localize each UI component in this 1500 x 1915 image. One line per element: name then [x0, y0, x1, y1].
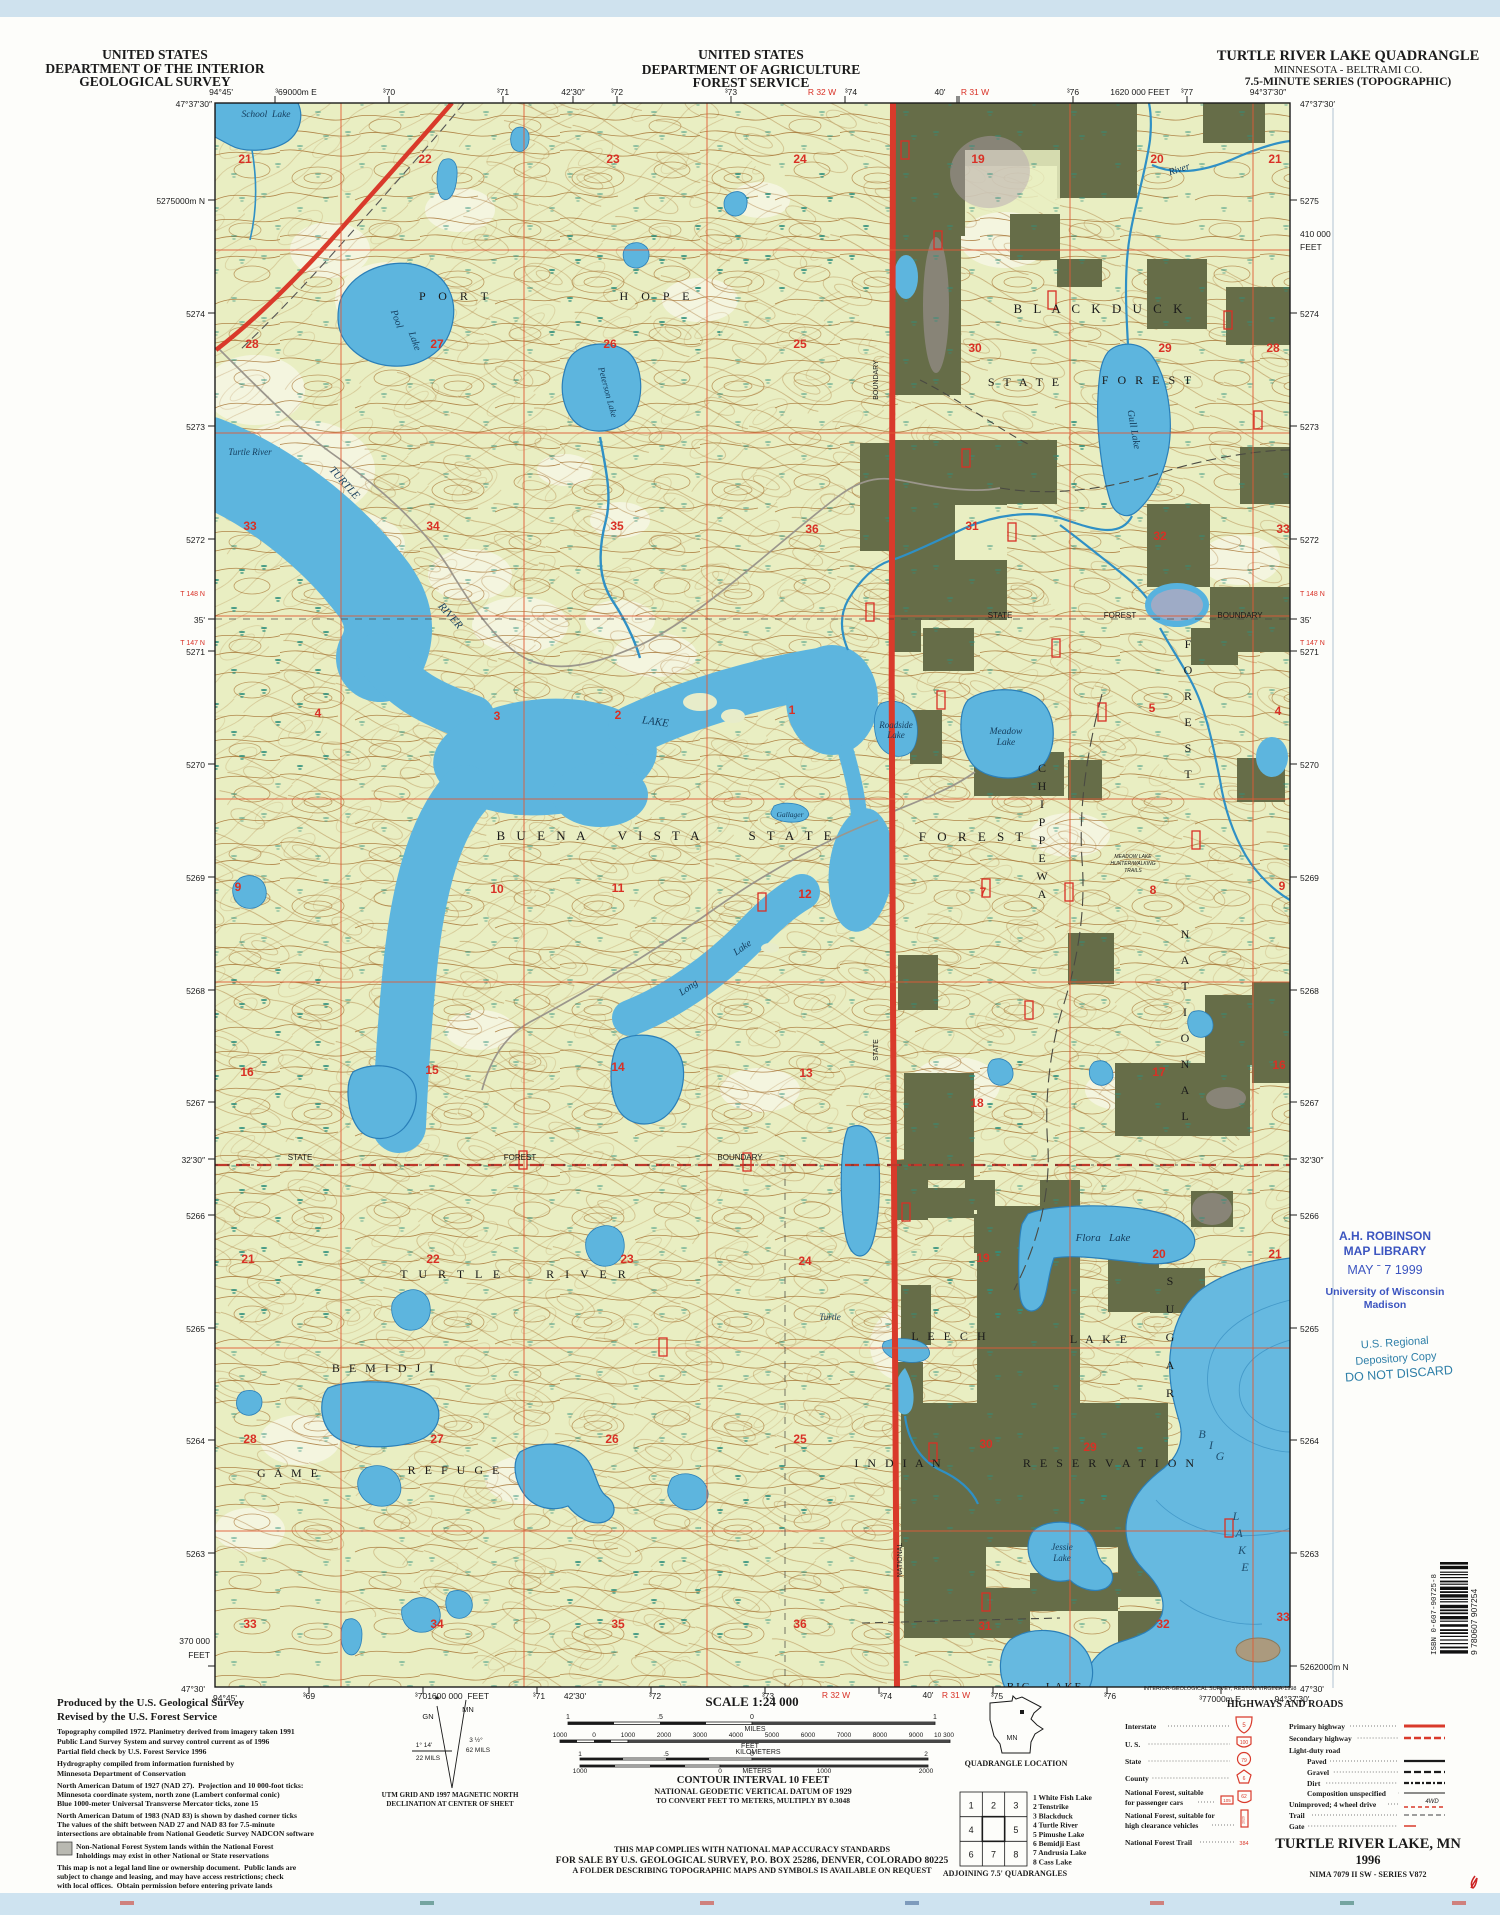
- svg-text:³71: ³71: [497, 87, 510, 97]
- svg-text:29: 29: [1158, 341, 1172, 355]
- svg-text:ADJOINING 7.5' QUADRANGLES: ADJOINING 7.5' QUADRANGLES: [943, 1869, 1068, 1878]
- svg-text:BOUNDARY: BOUNDARY: [717, 1153, 763, 1162]
- svg-text:4: 4: [315, 706, 322, 720]
- svg-text:2000: 2000: [919, 1768, 934, 1775]
- svg-text:8000: 8000: [873, 1732, 888, 1739]
- svg-text:T U R T L E R I V E R: T U R T L E R I V E R: [400, 1267, 629, 1281]
- svg-text:1: 1: [789, 703, 796, 717]
- svg-text:ISBN 0-607-90725-8: ISBN 0-607-90725-8: [1431, 1574, 1439, 1655]
- svg-text:³74: ³74: [845, 87, 858, 97]
- svg-text:20: 20: [1152, 1247, 1166, 1261]
- svg-text:Lake: Lake: [996, 738, 1015, 748]
- svg-text:Non-National Forest System lan: Non-National Forest System lands within …: [76, 1842, 274, 1851]
- svg-text:MEADOW LAKE: MEADOW LAKE: [1114, 854, 1152, 860]
- svg-text:5274: 5274: [1300, 309, 1319, 319]
- svg-text:23: 23: [620, 1252, 634, 1266]
- svg-text:BOUNDARY: BOUNDARY: [873, 360, 880, 400]
- svg-text:National Forest Trail: National Forest Trail: [1125, 1838, 1192, 1847]
- svg-text:5266: 5266: [186, 1211, 205, 1221]
- svg-text:5267: 5267: [1300, 1098, 1319, 1108]
- svg-text:0: 0: [750, 1714, 754, 1721]
- svg-text:North American Datum of 1927 (: North American Datum of 1927 (NAD 27). P…: [57, 1781, 303, 1790]
- svg-text:0: 0: [592, 1732, 596, 1739]
- svg-text:North American Datum of 1983 (: North American Datum of 1983 (NAD 83) is…: [57, 1811, 297, 1820]
- svg-text:E: E: [1240, 1560, 1249, 1574]
- svg-text:4 Turtle River: 4 Turtle River: [1033, 1821, 1079, 1830]
- svg-text:R 32 W: R 32 W: [822, 1690, 850, 1700]
- svg-text:21: 21: [238, 152, 252, 166]
- svg-text:KILOMETERS: KILOMETERS: [735, 1749, 780, 1756]
- svg-text:Gravel: Gravel: [1307, 1768, 1329, 1777]
- svg-text:0: 0: [750, 1751, 754, 1758]
- svg-text:9000: 9000: [909, 1732, 924, 1739]
- svg-text:UTM GRID AND 1997 MAGNETIC NOR: UTM GRID AND 1997 MAGNETIC NORTH: [382, 1791, 519, 1799]
- svg-text:Unimproved; 4 wheel drive: Unimproved; 4 wheel drive: [1289, 1800, 1377, 1809]
- svg-text:7: 7: [991, 1850, 996, 1860]
- svg-text:Light-duty road: Light-duty road: [1289, 1746, 1341, 1755]
- svg-text:5271: 5271: [1300, 647, 1319, 657]
- svg-text:1: 1: [578, 1751, 582, 1758]
- svg-text:I N D I A N: I N D I A N: [854, 1456, 943, 1470]
- svg-text:F: F: [1185, 637, 1192, 651]
- svg-text:L: L: [1181, 1109, 1188, 1123]
- svg-text:R E S E R V A T I O N: R E S E R V A T I O N: [1023, 1456, 1197, 1470]
- svg-text:62 MILS: 62 MILS: [466, 1747, 491, 1754]
- svg-text:Turtle River: Turtle River: [228, 447, 272, 457]
- svg-text:Gate: Gate: [1289, 1822, 1305, 1831]
- svg-text:2: 2: [924, 1751, 928, 1758]
- svg-text:UNITED STATES: UNITED STATES: [102, 47, 208, 62]
- svg-text:42'30': 42'30': [564, 1691, 587, 1701]
- svg-text:A: A: [1166, 1358, 1175, 1372]
- svg-text:R 31 W: R 31 W: [961, 87, 989, 97]
- svg-text:FOREST SERVICE: FOREST SERVICE: [693, 75, 810, 90]
- svg-text:subject to change and leasing,: subject to change and leasing, and may h…: [57, 1872, 284, 1881]
- svg-text:W: W: [1036, 869, 1048, 883]
- svg-text:35: 35: [610, 519, 624, 533]
- svg-text:³69000m E: ³69000m E: [275, 87, 317, 97]
- svg-text:R: R: [1166, 1386, 1174, 1400]
- svg-text:Composition unspecified: Composition unspecified: [1307, 1789, 1387, 1798]
- svg-text:FOR SALE BY U.S. GEOLOGICAL SU: FOR SALE BY U.S. GEOLOGICAL SURVEY, P.O.…: [556, 1856, 949, 1866]
- svg-text:E: E: [1184, 715, 1191, 729]
- svg-text:Topography compiled 1972. Plan: Topography compiled 1972. Planimetry der…: [57, 1727, 295, 1736]
- svg-text:5266: 5266: [1300, 1211, 1319, 1221]
- svg-text:62: 62: [1241, 1794, 1247, 1800]
- svg-text:16: 16: [240, 1065, 254, 1079]
- svg-text:35: 35: [611, 1617, 625, 1631]
- svg-text:384: 384: [1239, 1841, 1248, 1847]
- svg-text:for passenger cars: for passenger cars: [1125, 1798, 1183, 1807]
- svg-text:★: ★: [434, 1694, 440, 1702]
- svg-text:47°30': 47°30': [181, 1684, 205, 1694]
- svg-text:8 Cass Lake: 8 Cass Lake: [1033, 1857, 1072, 1866]
- svg-text:National Forest, suitable for: National Forest, suitable for: [1125, 1811, 1216, 1820]
- svg-text:F O R E S T: F O R E S T: [919, 829, 1027, 844]
- svg-text:94°37'30″: 94°37'30″: [1250, 87, 1286, 97]
- svg-text:K: K: [1237, 1543, 1247, 1557]
- svg-text:Primary highway: Primary highway: [1289, 1722, 1345, 1731]
- svg-text:Roadside: Roadside: [878, 720, 913, 730]
- svg-text:³71: ³71: [533, 1691, 546, 1701]
- svg-text:5: 5: [1149, 701, 1156, 715]
- svg-text:17: 17: [1152, 1065, 1166, 1079]
- svg-text:Paved: Paved: [1307, 1757, 1327, 1766]
- svg-text:S T A T E: S T A T E: [988, 375, 1062, 389]
- svg-text:This map is not a legal land l: This map is not a legal land line or own…: [57, 1863, 297, 1872]
- svg-text:NIMA 7079 II SW - SERIES V872: NIMA 7079 II SW - SERIES V872: [1309, 1870, 1426, 1879]
- svg-text:L A K E: L A K E: [1070, 1332, 1130, 1346]
- svg-text:with local offices. Obtain pe: with local offices. Obtain permission be…: [57, 1881, 272, 1890]
- svg-text:410 000: 410 000: [1300, 229, 1331, 239]
- svg-text:N: N: [1181, 1057, 1190, 1071]
- svg-text:24: 24: [793, 152, 807, 166]
- svg-text:33: 33: [243, 1617, 257, 1631]
- svg-text:G A M E: G A M E: [257, 1466, 321, 1480]
- svg-text:10: 10: [490, 882, 504, 896]
- svg-text:P: P: [1039, 815, 1046, 829]
- svg-text:GN: GN: [422, 1712, 433, 1721]
- svg-text:Jessie: Jessie: [1051, 1542, 1073, 1552]
- svg-text:P O R T: P O R T: [419, 289, 493, 303]
- svg-text:32: 32: [1153, 529, 1167, 543]
- svg-text:NATIONAL: NATIONAL: [897, 1543, 904, 1578]
- svg-text:28: 28: [245, 337, 259, 351]
- svg-text:5267: 5267: [186, 1098, 205, 1108]
- svg-text:79: 79: [1241, 1758, 1247, 1764]
- svg-text:22 MILS: 22 MILS: [416, 1755, 441, 1762]
- svg-text:34: 34: [426, 519, 440, 533]
- svg-text:30: 30: [968, 341, 982, 355]
- svg-text:R 32 W: R 32 W: [808, 87, 836, 97]
- svg-text:3 Blackduck: 3 Blackduck: [1033, 1811, 1074, 1820]
- svg-text:TURTLE RIVER LAKE, MN: TURTLE RIVER LAKE, MN: [1275, 1836, 1461, 1852]
- svg-text:School Lake: School Lake: [241, 110, 290, 120]
- svg-text:QUADRANGLE LOCATION: QUADRANGLE LOCATION: [965, 1759, 1068, 1768]
- svg-text:1620 000 FEET: 1620 000 FEET: [1110, 87, 1170, 97]
- svg-text:105: 105: [1223, 1798, 1231, 1803]
- svg-text:2: 2: [615, 708, 622, 722]
- svg-text:I: I: [1040, 797, 1044, 811]
- svg-text:5275000m N: 5275000m N: [156, 196, 205, 206]
- svg-text:3: 3: [494, 709, 501, 723]
- svg-text:6: 6: [1243, 1776, 1246, 1782]
- svg-text:FEET: FEET: [1300, 242, 1322, 252]
- svg-text:Blue 1000-meter Universal Tran: Blue 1000-meter Universal Transverse Mer…: [57, 1799, 259, 1808]
- svg-text:G: G: [1216, 1449, 1225, 1463]
- svg-text:STATE: STATE: [988, 611, 1013, 620]
- svg-text:DECLINATION AT CENTER OF SHEET: DECLINATION AT CENTER OF SHEET: [386, 1800, 514, 1808]
- svg-text:THIS MAP COMPLIES WITH NATIONA: THIS MAP COMPLIES WITH NATIONAL MAP ACCU…: [614, 1845, 890, 1854]
- svg-text:³75: ³75: [991, 1691, 1004, 1701]
- svg-text:9: 9: [235, 880, 242, 894]
- svg-text:94°45': 94°45': [209, 87, 233, 97]
- svg-text:5268: 5268: [1300, 986, 1319, 996]
- svg-text:³76: ³76: [1104, 1691, 1117, 1701]
- svg-text:The values of the shift betwee: The values of the shift between NAD 27 a…: [57, 1820, 275, 1829]
- svg-text:Hydrography compiled from info: Hydrography compiled from information fu…: [57, 1759, 234, 1768]
- svg-text:MAY ˉ 7 1999: MAY ˉ 7 1999: [1347, 1263, 1422, 1277]
- svg-text:14: 14: [611, 1060, 625, 1074]
- svg-text:0: 0: [718, 1768, 722, 1775]
- svg-text:TRAILS: TRAILS: [1124, 868, 1142, 874]
- svg-text:36: 36: [793, 1617, 807, 1631]
- svg-text:1000: 1000: [573, 1768, 588, 1775]
- svg-text:³77: ³77: [1181, 87, 1194, 97]
- svg-text:47°30': 47°30': [1300, 1684, 1324, 1694]
- svg-text:³72: ³72: [611, 87, 624, 97]
- svg-text:T: T: [1181, 979, 1189, 993]
- svg-text:T: T: [1184, 767, 1192, 781]
- svg-text:H: H: [1038, 779, 1047, 793]
- svg-text:³72: ³72: [649, 1691, 662, 1701]
- svg-text:BOUNDARY: BOUNDARY: [1217, 611, 1263, 620]
- svg-text:U: U: [1166, 1302, 1175, 1316]
- svg-text:U. S.: U. S.: [1125, 1740, 1140, 1749]
- svg-text:19: 19: [976, 1251, 990, 1265]
- svg-text:16: 16: [1272, 1058, 1286, 1072]
- svg-text:I: I: [1183, 1005, 1187, 1019]
- svg-text:2 Tenstrike: 2 Tenstrike: [1033, 1802, 1069, 1811]
- svg-text:HUNTER/WALKING: HUNTER/WALKING: [1110, 861, 1155, 867]
- svg-text:T 148 N: T 148 N: [180, 591, 205, 598]
- svg-text:35': 35': [194, 615, 205, 625]
- svg-text:370 000: 370 000: [179, 1636, 210, 1646]
- svg-text:G: G: [1166, 1330, 1175, 1344]
- svg-text:5269: 5269: [186, 873, 205, 883]
- svg-text:25: 25: [793, 337, 807, 351]
- svg-text:T 147 N: T 147 N: [1300, 640, 1325, 647]
- svg-text:intersections are obtainable f: intersections are obtainable from Nation…: [57, 1829, 315, 1838]
- svg-text:1000: 1000: [817, 1768, 832, 1775]
- svg-text:8: 8: [1013, 1850, 1018, 1860]
- svg-text:6 Bemidji East: 6 Bemidji East: [1033, 1839, 1081, 1848]
- svg-text:5275: 5275: [1300, 196, 1319, 206]
- svg-text:Lake: Lake: [886, 730, 905, 740]
- svg-text:Lake: Lake: [1052, 1553, 1071, 1563]
- svg-text:9: 9: [1279, 879, 1286, 893]
- svg-text:Flora Lake: Flora Lake: [1075, 1232, 1131, 1244]
- svg-text:34: 34: [430, 1617, 444, 1631]
- svg-text:26: 26: [603, 337, 617, 351]
- svg-text:L: L: [1232, 1509, 1240, 1523]
- svg-text:1: 1: [566, 1714, 570, 1721]
- svg-text:3000: 3000: [693, 1732, 708, 1739]
- svg-text:A.H. ROBINSON: A.H. ROBINSON: [1339, 1229, 1431, 1243]
- svg-text:MINNESOTA - BELTRAMI CO.: MINNESOTA - BELTRAMI CO.: [1274, 64, 1423, 76]
- svg-text:O: O: [1181, 1031, 1190, 1045]
- svg-text:33: 33: [1276, 1610, 1290, 1624]
- svg-text:Public Land Survey System and: Public Land Survey System and survey con…: [57, 1737, 270, 1746]
- svg-text:FOREST: FOREST: [1104, 611, 1137, 620]
- svg-text:Trail: Trail: [1289, 1811, 1305, 1820]
- svg-text:28: 28: [1266, 341, 1280, 355]
- svg-text:3 ½°: 3 ½°: [469, 1736, 483, 1744]
- svg-text:5270: 5270: [1300, 760, 1319, 770]
- svg-text:25: 25: [793, 1432, 807, 1446]
- svg-text:Inholdings may exist in other: Inholdings may exist in other National o…: [76, 1851, 269, 1860]
- svg-text:31: 31: [965, 519, 979, 533]
- svg-text:TO CONVERT FEET TO METERS, MUL: TO CONVERT FEET TO METERS, MULTIPLY BY 0…: [656, 1796, 850, 1805]
- svg-text:TURTLE RIVER LAKE QUADRANGLE: TURTLE RIVER LAKE QUADRANGLE: [1217, 48, 1480, 64]
- svg-text:Produced by the U.S. Geologica: Produced by the U.S. Geological Survey: [57, 1697, 245, 1709]
- svg-text:B: B: [1198, 1427, 1206, 1441]
- svg-text:high clearance vehicles: high clearance vehicles: [1125, 1821, 1198, 1830]
- svg-text:5 Pimushe Lake: 5 Pimushe Lake: [1033, 1830, 1085, 1839]
- svg-text:University of Wisconsin: University of Wisconsin: [1326, 1286, 1445, 1298]
- svg-text:32'30″: 32'30″: [181, 1155, 205, 1165]
- svg-text:1996: 1996: [1356, 1853, 1381, 1867]
- svg-text:STATE: STATE: [288, 1153, 313, 1162]
- svg-text:27: 27: [430, 1432, 444, 1446]
- svg-text:FEET: FEET: [188, 1650, 210, 1660]
- svg-text:4000: 4000: [729, 1732, 744, 1739]
- svg-text:5264: 5264: [186, 1436, 205, 1446]
- svg-text:³73: ³73: [725, 87, 738, 97]
- svg-text:State: State: [1125, 1757, 1142, 1766]
- svg-text:12: 12: [798, 887, 812, 901]
- svg-text:5269: 5269: [1300, 873, 1319, 883]
- svg-text:METERS: METERS: [742, 1768, 772, 1775]
- svg-text:21: 21: [1268, 152, 1282, 166]
- svg-text:11: 11: [612, 881, 625, 895]
- svg-text:B U E N A V I S T A: B U E N A V I S T A: [497, 828, 704, 843]
- svg-text:³70: ³70: [383, 87, 396, 97]
- svg-text:7 Andrusia Lake: 7 Andrusia Lake: [1033, 1848, 1087, 1857]
- svg-text:1000: 1000: [621, 1732, 636, 1739]
- svg-text:8: 8: [1150, 883, 1157, 897]
- svg-text:7000: 7000: [837, 1732, 852, 1739]
- svg-text:5264: 5264: [1300, 1436, 1319, 1446]
- svg-text:Revised by the U.S. Forest Ser: Revised by the U.S. Forest Service: [57, 1711, 217, 1723]
- svg-text:47°37'30″: 47°37'30″: [176, 99, 212, 109]
- svg-text:1° 14': 1° 14': [416, 1741, 433, 1749]
- svg-text:21: 21: [1268, 1247, 1282, 1261]
- svg-text:4: 4: [969, 1825, 974, 1835]
- svg-text:40': 40': [922, 1690, 933, 1700]
- svg-text:National Forest, suitable: National Forest, suitable: [1125, 1788, 1204, 1797]
- svg-text:33: 33: [243, 519, 257, 533]
- svg-text:22: 22: [418, 152, 432, 166]
- svg-text:10 300: 10 300: [934, 1732, 954, 1739]
- svg-text:³701600 000 FEET: ³701600 000 FEET: [415, 1691, 489, 1701]
- svg-text:42'30″: 42'30″: [561, 87, 585, 97]
- svg-text:6: 6: [969, 1850, 974, 1860]
- svg-text:³76: ³76: [1067, 87, 1080, 97]
- svg-text:T 148 N: T 148 N: [1300, 591, 1325, 598]
- svg-text:Meadow: Meadow: [989, 727, 1023, 737]
- svg-text:HIGHWAYS AND ROADS: HIGHWAYS AND ROADS: [1227, 1699, 1344, 1710]
- svg-text:6000: 6000: [801, 1732, 816, 1739]
- svg-text:23: 23: [606, 152, 620, 166]
- svg-text:35': 35': [1300, 615, 1311, 625]
- svg-text:22: 22: [426, 1252, 440, 1266]
- svg-text:33: 33: [1276, 522, 1290, 536]
- svg-text:28: 28: [243, 1432, 257, 1446]
- svg-text:Partial field check by U.S. Fo: Partial field check by U.S. Forest Servi…: [57, 1747, 207, 1756]
- svg-text:5265: 5265: [186, 1324, 205, 1334]
- svg-text:T 147 N: T 147 N: [180, 640, 205, 647]
- svg-text:15: 15: [425, 1063, 439, 1077]
- svg-text:.5: .5: [663, 1751, 669, 1758]
- svg-text:5262000m N: 5262000m N: [1300, 1662, 1349, 1672]
- svg-text:40': 40': [934, 87, 945, 97]
- svg-text:Dirt: Dirt: [1307, 1779, 1321, 1788]
- svg-text:County: County: [1125, 1774, 1149, 1783]
- svg-text:B L A C K D U C K: B L A C K D U C K: [1014, 301, 1187, 316]
- svg-text:S: S: [1185, 741, 1192, 755]
- svg-text:5270: 5270: [186, 760, 205, 770]
- svg-text:A: A: [1181, 953, 1190, 967]
- svg-text:19: 19: [971, 152, 985, 166]
- svg-text:MN: MN: [462, 1705, 474, 1714]
- svg-text:1000: 1000: [553, 1732, 568, 1739]
- svg-text:24: 24: [798, 1254, 812, 1268]
- svg-text:R E F U G E: R E F U G E: [408, 1463, 503, 1477]
- svg-text:MILES: MILES: [744, 1726, 765, 1733]
- svg-text:4: 4: [1275, 704, 1282, 718]
- svg-text:B E M I D J I: B E M I D J I: [332, 1361, 436, 1375]
- svg-text:A: A: [1038, 887, 1047, 901]
- svg-text:P: P: [1039, 833, 1046, 847]
- svg-text:31: 31: [978, 1619, 992, 1633]
- svg-text:4WD: 4WD: [1425, 1799, 1439, 1805]
- svg-text:E: E: [1038, 851, 1045, 865]
- svg-text:47°37'30′: 47°37'30′: [1300, 99, 1335, 109]
- svg-text:1: 1: [969, 1800, 974, 1810]
- svg-text:UNITED STATES: UNITED STATES: [698, 47, 804, 62]
- svg-text:100: 100: [1240, 1740, 1249, 1746]
- svg-text:SCALE 1:24 000: SCALE 1:24 000: [705, 1694, 798, 1709]
- svg-text:Interstate: Interstate: [1125, 1722, 1157, 1731]
- svg-text:9 780607 907254: 9 780607 907254: [1469, 1589, 1479, 1655]
- svg-text:5: 5: [1013, 1825, 1018, 1835]
- svg-text:L E E C H: L E E C H: [911, 1329, 988, 1343]
- svg-text:5265: 5265: [1300, 1324, 1319, 1334]
- svg-text:A FOLDER DESCRIBING TOPOGRAPHI: A FOLDER DESCRIBING TOPOGRAPHIC MAPS AND…: [572, 1866, 932, 1875]
- svg-text:INTERIOR-GEOLOGICAL SURVEY, RE: INTERIOR-GEOLOGICAL SURVEY, RESTON VIRGI…: [1144, 1686, 1297, 1692]
- svg-text:5273: 5273: [1300, 422, 1319, 432]
- svg-text:26: 26: [605, 1432, 619, 1446]
- svg-text:5000: 5000: [765, 1732, 780, 1739]
- svg-text:5271: 5271: [186, 647, 205, 657]
- svg-text:13: 13: [799, 1066, 813, 1080]
- svg-text:Minnesota coordinate system, n: Minnesota coordinate system, north zone …: [57, 1790, 280, 1799]
- svg-text:R 31 W: R 31 W: [942, 1690, 970, 1700]
- svg-text:N: N: [1181, 927, 1190, 941]
- svg-text:21: 21: [241, 1252, 255, 1266]
- svg-text:30: 30: [979, 1437, 993, 1451]
- svg-text:5268: 5268: [186, 986, 205, 996]
- svg-text:.5: .5: [657, 1714, 663, 1721]
- svg-text:5272: 5272: [1300, 535, 1319, 545]
- svg-text:STATE: STATE: [873, 1039, 880, 1061]
- svg-text:MN: MN: [1007, 1735, 1018, 1742]
- svg-text:MAP LIBRARY: MAP LIBRARY: [1344, 1244, 1427, 1258]
- svg-text:32'30″: 32'30″: [1300, 1155, 1324, 1165]
- svg-text:29: 29: [1083, 1440, 1097, 1454]
- svg-text:5272: 5272: [186, 535, 205, 545]
- svg-text:F O R E S T: F O R E S T: [1102, 373, 1194, 387]
- svg-text:A: A: [1181, 1083, 1190, 1097]
- svg-text:5274: 5274: [186, 309, 205, 319]
- svg-text:5263: 5263: [1300, 1549, 1319, 1559]
- svg-text:3: 3: [1013, 1800, 1018, 1810]
- svg-text:FOREST: FOREST: [504, 1153, 537, 1162]
- svg-text:S T A T E: S T A T E: [748, 828, 835, 843]
- svg-text:Gallager: Gallager: [776, 810, 803, 819]
- svg-text:A: A: [1234, 1526, 1243, 1540]
